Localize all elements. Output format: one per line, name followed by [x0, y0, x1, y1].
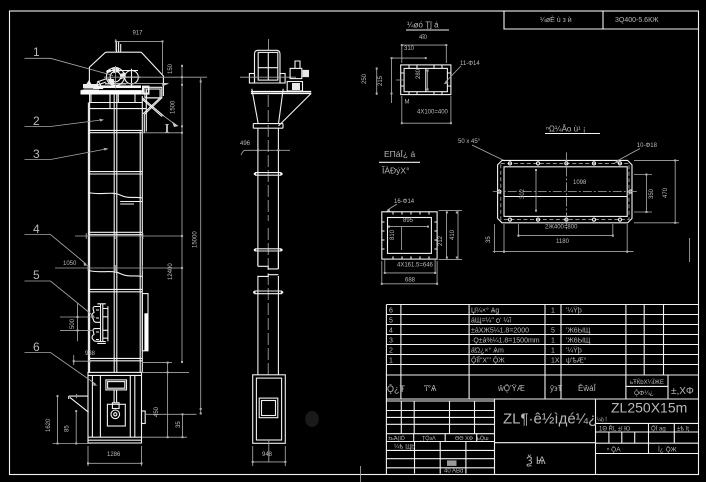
svg-text:4X100=400: 4X100=400: [417, 110, 449, 116]
svg-text:'Ж6ЫЩ: 'Ж6ЫЩ: [566, 338, 591, 345]
svg-text:áΏ¿×° Ѧm: áΏ¿×° Ѧm: [471, 347, 504, 355]
svg-text:410: 410: [450, 229, 456, 240]
svg-text:1: 1: [389, 358, 393, 365]
svg-text:450: 450: [154, 406, 160, 417]
svg-text:2: 2: [33, 114, 40, 128]
svg-text:6: 6: [33, 340, 40, 354]
svg-text:·Ǫ±ả%¼1.8=1500mm: ·Ǫ±ả%¼1.8=1500mm: [471, 338, 540, 345]
svg-text:ZL¶·ê½ìдé¼¿: ZL¶·ê½ìдé¼¿: [503, 411, 597, 428]
svg-text:1620: 1620: [46, 418, 52, 432]
svg-text:35: 35: [486, 236, 492, 243]
svg-text:'ĭ°Ѧ: 'ĭ°Ѧ: [424, 384, 437, 393]
svg-text:Ĭ¿ ǬЖ: Ĭ¿ ǬЖ: [657, 445, 677, 454]
svg-text:'Ж6ЫЩ: 'Ж6ЫЩ: [566, 328, 591, 335]
svg-text:496: 496: [240, 141, 251, 147]
svg-text:895: 895: [403, 218, 414, 224]
svg-text:1: 1: [551, 308, 555, 315]
svg-text:ЕΠáĪ¿ á: ЕΠáĪ¿ á: [384, 149, 415, 159]
svg-text:áЩ=¼" ѻ' ¼ĭ: áЩ=¼" ѻ' ¼ĭ: [471, 317, 512, 325]
svg-text:¼ƀ Ĭ: ¼ƀ Ĭ: [597, 417, 607, 424]
svg-text:212: 212: [438, 235, 444, 246]
svg-text:ŷ϶Ŧ: ŷ϶Ŧ: [550, 384, 563, 393]
svg-text:±ảXЖ5¼1.8=2000: ±ảXЖ5¼1.8=2000: [471, 328, 529, 335]
svg-text:1500: 1500: [171, 100, 177, 114]
svg-text:5: 5: [33, 268, 40, 282]
svg-text:1286: 1286: [107, 452, 121, 458]
svg-text:85: 85: [65, 425, 71, 432]
svg-text:10-Φ18: 10-Φ18: [637, 143, 658, 149]
svg-text:3: 3: [33, 147, 40, 161]
svg-text:1X: 1X: [551, 358, 560, 365]
svg-text:'¼Ϋþ: '¼Ϋþ: [566, 307, 582, 315]
svg-text:150: 150: [168, 63, 174, 74]
svg-text:5: 5: [389, 318, 393, 325]
svg-text:'¼Ϋþ: '¼Ϋþ: [566, 347, 582, 355]
svg-text:50 x 45°: 50 x 45°: [458, 139, 481, 145]
svg-text:±ѣ ĭƫ: ±ѣ ĭƫ: [677, 427, 689, 433]
svg-text:4: 4: [389, 328, 393, 335]
svg-text:¼øÈ ù з ѝ: ¼øÈ ù з ѝ: [540, 15, 572, 24]
svg-text:15000: 15000: [193, 231, 199, 248]
svg-text:470: 470: [663, 187, 669, 198]
svg-text:250: 250: [362, 73, 368, 84]
svg-text:5: 5: [551, 328, 555, 335]
svg-text:ZL250X15m: ZL250X15m: [611, 400, 687, 416]
svg-text:¼øó Ţĵ á: ¼øó Ţĵ á: [407, 21, 439, 30]
svg-text:ψ'ѣÆ°: ψ'ѣÆ°: [566, 357, 587, 365]
svg-text:4: 4: [33, 222, 40, 236]
svg-text:11-Φ14: 11-Φ14: [460, 61, 480, 67]
svg-text:ⁿ ǬA: ⁿ ǬA: [607, 446, 621, 454]
svg-text:6: 6: [389, 308, 393, 315]
svg-text:40 ΆΒd: 40 ΆΒd: [444, 469, 463, 475]
svg-text:1: 1: [33, 45, 40, 59]
svg-text:280: 280: [416, 68, 422, 79]
svg-text:1Θ ŘL ±ǐ Ю: 1Θ ŘL ±ǐ Ю: [599, 425, 630, 433]
svg-text:¸ŢǬзΛ: ¸ŢǬзΛ: [420, 435, 436, 442]
svg-text:Ǭ¿Ŧ: Ǭ¿Ŧ: [387, 384, 405, 394]
svg-text:3: 3: [389, 338, 393, 345]
svg-text:Џ¼×° Ѧg: Џ¼×° Ѧg: [471, 307, 499, 315]
svg-text:1: 1: [551, 338, 555, 345]
svg-text:35: 35: [176, 421, 182, 428]
svg-text:4ΐ0: 4ΐ0: [419, 34, 428, 41]
svg-text:12400: 12400: [168, 263, 174, 280]
svg-text:±,XΦ: ±,XΦ: [671, 386, 694, 397]
svg-text:310: 310: [404, 46, 415, 52]
svg-text:4X161.5=646: 4X161.5=646: [397, 263, 434, 269]
svg-text:810: 810: [390, 229, 396, 240]
svg-text:16-Φ14: 16-Φ14: [394, 199, 415, 205]
svg-text:1098: 1098: [573, 180, 587, 186]
svg-text:ǬΦ¼¿: ǬΦ¼¿: [634, 389, 654, 397]
svg-text:1180: 1180: [556, 239, 570, 245]
svg-text:948: 948: [262, 452, 273, 458]
svg-text:ǬΐĪ"X"' ǬЖ: ǬΐĪ"X"' ǬЖ: [471, 357, 505, 365]
svg-text:500: 500: [70, 318, 76, 329]
svg-text:215: 215: [378, 75, 384, 86]
svg-text:302: 302: [520, 188, 526, 199]
svg-text:988: 988: [85, 351, 96, 357]
svg-text:ĨÀĐýΧ°: ĨÀĐýΧ°: [381, 166, 410, 176]
svg-text:¼ѣ Щb: ¼ѣ Щb: [394, 442, 415, 450]
svg-text:ǬΪ ag: ǬΪ ag: [651, 426, 666, 433]
svg-text:ьǬш: ьǬш: [477, 435, 489, 442]
svg-text:ΘΘ ΧΦ: ΘΘ ΧΦ: [455, 436, 474, 442]
svg-text:2: 2: [389, 348, 393, 355]
svg-text:1050: 1050: [63, 261, 77, 267]
svg-text:ⁿΩ¼Åo ù¹ ¡: ⁿΩ¼Åo ù¹ ¡: [546, 125, 586, 134]
svg-text:M: M: [405, 100, 410, 106]
svg-text:I: I: [165, 121, 170, 136]
svg-text:3Q400-5.6КЖ: 3Q400-5.6КЖ: [615, 17, 659, 24]
svg-text:ŵǬ'ΫÆ: ŵǬ'ΫÆ: [497, 384, 525, 393]
svg-text:1: 1: [551, 348, 555, 355]
svg-text:688: 688: [405, 278, 416, 284]
svg-text:2Ж400=800: 2Ж400=800: [545, 225, 578, 231]
svg-text:±ьΆ(IĎ: ±ьΆ(IĎ: [388, 434, 405, 442]
svg-text:ĔŵáĬ: ĔŵáĬ: [578, 384, 597, 393]
svg-text:917: 917: [133, 31, 144, 37]
svg-text:ьŦЌbX¼ΪЖЕ: ьŦЌbX¼ΪЖЕ: [630, 379, 664, 386]
svg-text:Ѯ Ѩ: Ѯ Ѩ: [526, 454, 546, 467]
svg-text:350: 350: [649, 188, 655, 199]
